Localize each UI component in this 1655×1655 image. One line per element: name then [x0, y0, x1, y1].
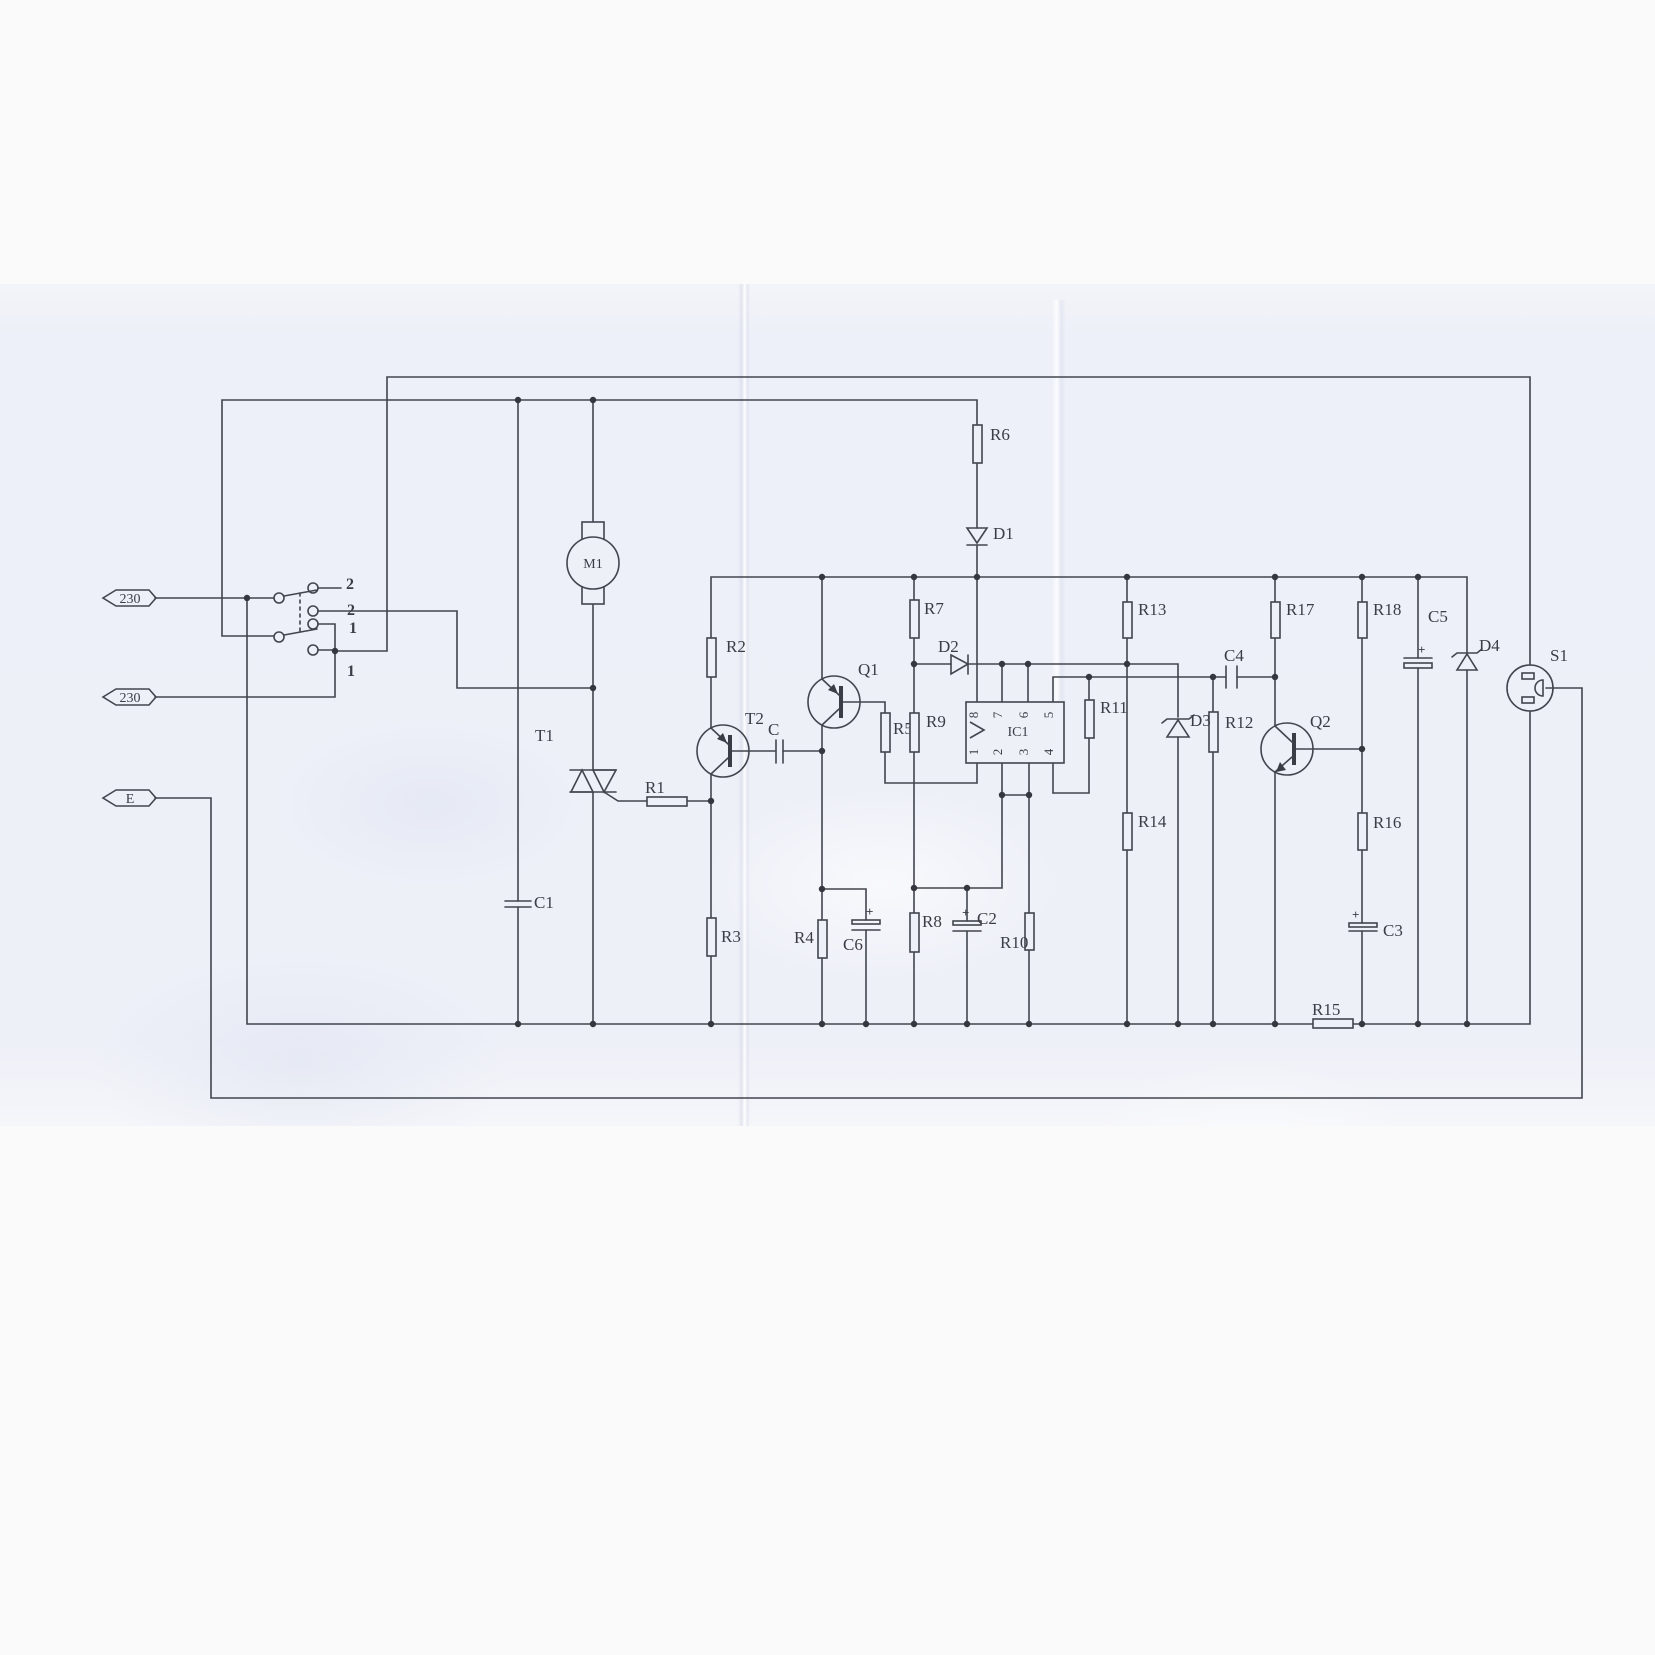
wire-q2-chain — [1275, 577, 1362, 1024]
capacitor-c3-label: C3 — [1383, 921, 1403, 940]
capacitor-c6-label: C6 — [843, 935, 863, 954]
transistor-q2-label: Q2 — [1310, 712, 1331, 731]
transistor-q1-label: Q1 — [858, 660, 879, 679]
resistor-r12-symbol: R12 — [1209, 712, 1253, 752]
wire-c6-branch — [822, 889, 866, 1024]
resistor-r3-label: R3 — [721, 927, 741, 946]
resistor-r8-label: R8 — [922, 912, 942, 931]
resistor-r17-symbol: R17 — [1271, 600, 1315, 638]
ic1-pin-5: 5 — [1041, 712, 1056, 719]
resistor-r2-symbol: R2 — [707, 637, 746, 677]
resistor-r16-symbol: R16 — [1358, 813, 1401, 850]
capacitor-c4-label: C4 — [1224, 646, 1244, 665]
switch-throw-label: 2 — [346, 576, 354, 593]
connector-live-bottom: 230 — [103, 689, 156, 706]
transistor-t2-symbol: T2 — [697, 709, 764, 777]
resistor-r18-label: R18 — [1373, 600, 1401, 619]
resistor-r15-symbol: R15 — [1312, 1000, 1353, 1028]
connector-live-top-label: 230 — [120, 592, 141, 607]
motor-m1-label: M1 — [583, 557, 602, 572]
switch-throw-label: 2 — [347, 602, 355, 619]
diode-d4-symbol: D4 — [1452, 636, 1500, 670]
resistor-r6-symbol: R6 — [973, 425, 1010, 463]
diode-d2-symbol: D2 — [938, 637, 968, 674]
socket-s1-symbol: S1 — [1507, 646, 1568, 711]
ic1-pin-4: 4 — [1041, 748, 1056, 755]
wire-earth-outer-loop — [155, 688, 1582, 1098]
ic1-pin-3: 3 — [1016, 749, 1031, 756]
diode-d3-symbol: D3 — [1162, 711, 1211, 737]
connector-earth-label: E — [126, 792, 135, 807]
resistor-r7-symbol: R7 — [910, 599, 944, 638]
capacitor-c5-symbol: + C5 — [1404, 607, 1448, 668]
connector-earth: E — [103, 790, 156, 807]
resistor-r13-symbol: R13 — [1123, 600, 1166, 638]
resistor-r2-label: R2 — [726, 637, 746, 656]
resistor-r14-symbol: R14 — [1123, 812, 1167, 850]
resistor-r1-label: R1 — [645, 778, 665, 797]
junction-dots — [244, 397, 1470, 1027]
resistor-r10-symbol: R10 — [1000, 913, 1034, 952]
c6-plus-mark: + — [866, 904, 873, 919]
capacitor-c3-symbol: + C3 — [1349, 907, 1403, 940]
resistor-r9-label: R9 — [926, 712, 946, 731]
resistor-r7-label: R7 — [924, 599, 944, 618]
capacitor-c4-symbol: C4 — [1224, 646, 1244, 688]
c3-plus-mark: + — [1352, 907, 1359, 922]
resistor-r17-label: R17 — [1286, 600, 1315, 619]
ic1-pin-7: 7 — [990, 711, 1005, 718]
wire-ic-pins-2-3 — [914, 763, 1029, 1024]
c5-plus-mark: + — [1418, 642, 1425, 657]
resistor-r5-symbol: R5 — [881, 713, 913, 752]
ic1-pin-8: 8 — [966, 712, 981, 719]
motor-m1-symbol: M1 — [567, 522, 619, 604]
wire-live-top-and-bottom-rail — [155, 598, 1530, 1024]
diode-d4-label: D4 — [1479, 636, 1500, 655]
ic1-pin-1: 1 — [966, 749, 981, 756]
capacitor-c2-symbol: + C2 — [953, 905, 997, 931]
diode-d1-symbol: D1 — [967, 524, 1014, 545]
diode-d3-label: D3 — [1190, 711, 1211, 730]
wire-mid-supply-rail — [711, 577, 1467, 652]
resistor-r11-label: R11 — [1100, 698, 1128, 717]
schematic-canvas: 230 230 E 2 2 1 1 — [0, 0, 1655, 1655]
resistor-r4-label: R4 — [794, 928, 814, 947]
ic1-pin-6: 6 — [1016, 711, 1031, 718]
capacitor-c6-symbol: + C6 — [843, 904, 880, 954]
wire-top-outer — [335, 377, 1530, 665]
capacitor-c5-label: C5 — [1428, 607, 1448, 626]
resistor-r10-label: R10 — [1000, 933, 1028, 952]
switch-throw-label: 1 — [347, 663, 355, 680]
connector-live-bottom-label: 230 — [120, 691, 141, 706]
resistor-r13-label: R13 — [1138, 600, 1166, 619]
resistor-r12-label: R12 — [1225, 713, 1253, 732]
resistor-r3-symbol: R3 — [707, 918, 741, 956]
triac-t1-symbol: T1 — [535, 726, 616, 792]
resistor-r4-symbol: R4 — [794, 920, 827, 958]
diode-d2-label: D2 — [938, 637, 959, 656]
capacitor-c1-label: C1 — [534, 893, 554, 912]
capacitor-c-label: C — [768, 720, 779, 739]
resistor-r6-label: R6 — [990, 425, 1010, 444]
switch-throw-label: 1 — [349, 620, 357, 637]
resistor-r15-label: R15 — [1312, 1000, 1340, 1019]
resistor-r8-symbol: R8 — [910, 912, 942, 952]
c2-plus-mark: + — [962, 905, 969, 920]
socket-s1-label: S1 — [1550, 646, 1568, 665]
capacitor-c1-symbol: C1 — [505, 893, 554, 912]
wire-live-bottom — [155, 651, 335, 697]
triac-t1-label: T1 — [535, 726, 554, 745]
transistor-t2-label: T2 — [745, 709, 764, 728]
scanned-page: 230 230 E 2 2 1 1 — [0, 0, 1655, 1655]
resistor-r9-symbol: R9 — [910, 712, 946, 752]
transistor-q1-symbol: Q1 — [808, 660, 879, 728]
ic1-pin-2: 2 — [990, 749, 1005, 756]
capacitor-c2-label: C2 — [977, 909, 997, 928]
resistor-r14-label: R14 — [1138, 812, 1167, 831]
resistor-r16-label: R16 — [1373, 813, 1401, 832]
resistor-r18-symbol: R18 — [1358, 600, 1401, 638]
capacitor-c-symbol: C — [768, 720, 783, 763]
resistor-r1-symbol: R1 — [645, 778, 687, 806]
ic1-symbol: IC1 8 7 6 5 1 2 3 4 — [966, 702, 1064, 763]
wire-switch-throws — [318, 588, 593, 688]
connector-live-top: 230 — [103, 590, 156, 607]
resistor-r11-symbol: R11 — [1085, 698, 1128, 738]
ic1-label: IC1 — [1008, 725, 1029, 740]
diode-d1-label: D1 — [993, 524, 1014, 543]
transistor-q2-symbol: Q2 — [1261, 712, 1331, 775]
mode-switch-symbol: 2 2 1 1 — [274, 576, 357, 680]
